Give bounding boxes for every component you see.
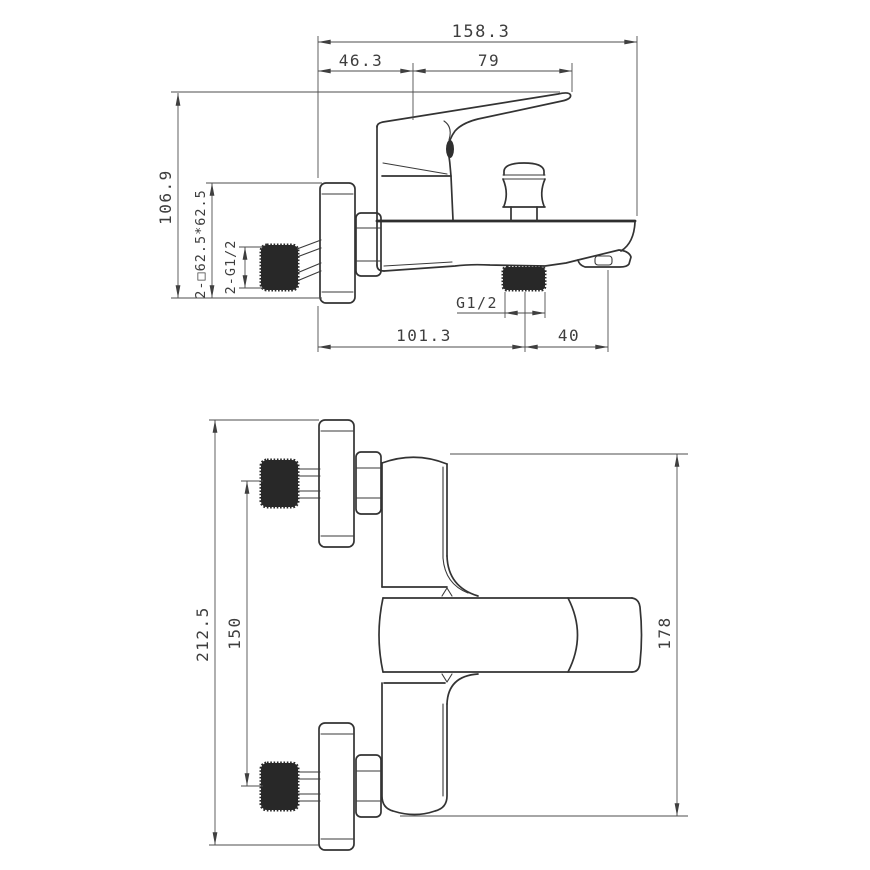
technical-drawing-page: 158.3 46.3 79 106.9 2-□62.5*62.5 [0, 0, 870, 870]
column-fillet [447, 674, 478, 704]
lower-inlet [261, 723, 381, 850]
handle-base-facet [383, 163, 447, 174]
column-sides-bottom [382, 683, 447, 815]
lower-body-column [382, 674, 478, 815]
dim-inlet-threads: 2-G1/2 [223, 240, 263, 295]
knurled-union-nut [261, 245, 298, 290]
dim-wall-to-axis: 46.3 79 [318, 51, 572, 120]
dim-overall-height-side: 106.9 [156, 92, 560, 298]
dim-label: 106.9 [156, 169, 175, 225]
body-slab [379, 598, 642, 672]
dim-label: 101.3 [396, 326, 452, 345]
escutcheon-plate [319, 420, 354, 547]
body-bottom-line [384, 262, 452, 266]
slab-right-cap [632, 598, 642, 672]
aerator-icon [595, 256, 612, 265]
column-dome-top [382, 457, 447, 464]
hex-nut-outline [356, 452, 381, 514]
front-view: 212.5 150 178 [193, 420, 688, 850]
pipe-line [297, 240, 321, 249]
spout-underside [384, 260, 578, 271]
escutcheon-plate [319, 723, 354, 850]
wall-escutcheon [320, 183, 355, 303]
hex-nut-outline [356, 755, 381, 817]
pipe-line [297, 271, 321, 281]
upper-body-column [382, 457, 478, 596]
lever-handle-outline [377, 93, 571, 176]
knob-dome [504, 163, 544, 175]
side-view: 158.3 46.3 79 106.9 2-□62.5*62.5 [156, 22, 637, 352]
dim-inlet-spacing: 150 [225, 481, 263, 786]
knurled-union-nut [261, 460, 298, 507]
fillet-mark [442, 674, 452, 682]
dim-label: 158.3 [452, 22, 511, 42]
fillet-mark [442, 588, 452, 596]
shower-outlet-connector [503, 267, 545, 290]
pipe-line [297, 248, 321, 257]
knob-waist-right [542, 179, 545, 206]
dim-label: G1/2 [456, 294, 498, 312]
faucet-dimension-drawing: 158.3 46.3 79 106.9 2-□62.5*62.5 [0, 0, 870, 870]
dim-overall-height-front: 212.5 [193, 420, 319, 845]
slab-left-cap [379, 598, 383, 672]
dim-label: 2-G1/2 [223, 240, 239, 295]
upper-inlet [261, 420, 381, 547]
handle-elbow-line [444, 121, 450, 140]
dim-label: 178 [655, 616, 674, 649]
dim-outlet-thread: G1/2 [456, 292, 545, 318]
escutcheon-plate [320, 183, 355, 303]
handle-pivot-lug [446, 140, 454, 158]
dim-label: 40 [558, 326, 580, 345]
dim-label: 2-□62.5*62.5 [193, 189, 209, 299]
dim-escutcheon-square: 2-□62.5*62.5 [193, 183, 322, 299]
knurled-union-nut [261, 763, 298, 810]
spout-tip-curve [621, 222, 635, 251]
dim-label: 46.3 [339, 51, 384, 70]
diverter-knob [503, 163, 545, 221]
spout-endcap-arc [568, 598, 578, 672]
dim-label: 150 [225, 616, 244, 649]
dim-label: 212.5 [193, 606, 212, 662]
pipe-line [297, 263, 321, 273]
mixer-body [377, 93, 578, 271]
body-right-edge [451, 176, 453, 220]
dim-label: 79 [478, 51, 500, 70]
spout [377, 221, 635, 267]
knob-waist-left [503, 179, 506, 206]
eccentric-pipes [297, 240, 321, 281]
